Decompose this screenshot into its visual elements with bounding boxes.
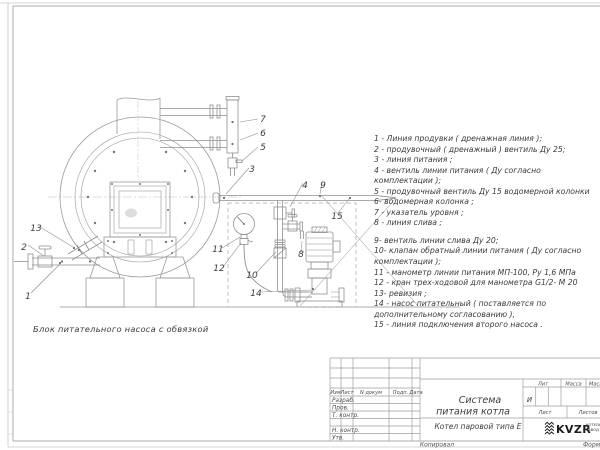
legend-line: 12 - кран трех-ходовой для манометра G1/… — [374, 278, 600, 289]
sheet-label: Лист — [538, 410, 553, 416]
product-name: Котел паровой типа Е — [434, 422, 521, 431]
callout-2: 2 — [21, 243, 27, 253]
legend-line: 1 - Линия продувки ( дренажная линия ); — [374, 134, 600, 145]
logo-subline-2: ЗАВОД Р — [586, 428, 600, 432]
legend-line: 14 - насос питательный ( поставляется по — [374, 299, 600, 310]
legend-line: 7 - указатель уровня ; — [374, 208, 600, 219]
role-prov: Пров. — [332, 406, 349, 412]
legend-line: комплектации ); — [374, 257, 600, 268]
burner-plate — [104, 237, 176, 257]
drawing-caption: Блок питательного насоса с обвязкой — [33, 324, 209, 334]
callout-15: 15 — [331, 212, 343, 222]
col-list: Лист — [340, 390, 355, 396]
chimney — [117, 98, 160, 180]
scale-label: Масш — [589, 382, 600, 388]
callout-14: 14 — [250, 289, 262, 299]
col-izm: Изм — [330, 390, 341, 396]
legend-line: 15 - линия подключения второго насоса . — [374, 320, 600, 331]
logo-subline-1: КОТЕЛЬН — [586, 423, 600, 427]
doc-title-line1: Система — [459, 395, 502, 406]
legend: 1 - Линия продувки ( дренажная линия ); … — [374, 134, 600, 331]
callout-10: 10 — [246, 271, 258, 281]
callout-5: 5 — [260, 143, 266, 153]
callout-4: 4 — [302, 181, 308, 191]
callout-7: 7 — [260, 115, 266, 125]
lit-value: И — [527, 396, 533, 404]
callout-9: 9 — [320, 181, 326, 191]
callout-leaders — [28, 119, 349, 293]
legend-line: 5 - продувочный вентиль Ду 15 водомерной… — [374, 187, 600, 198]
role-tkontr: Т. контр. — [332, 413, 359, 419]
legend-line: 6- водомерная колонка ; — [374, 197, 600, 208]
title-block-roles: Разраб. Пров. Т. контр. Н. контр. Утв. — [332, 398, 360, 442]
role-razrab: Разраб. — [332, 398, 355, 404]
callout-3: 3 — [249, 165, 255, 175]
drawing-sheet: 1 2 3 4 5 6 7 8 9 10 11 12 13 14 15 Изм … — [0, 0, 600, 450]
legend-line: комплектации ); — [374, 176, 600, 187]
copied-label: Копировал — [420, 442, 454, 449]
kvzr-logo: KVZR КОТЕЛЬН ЗАВОД Р — [545, 422, 600, 436]
mass-label: Масса — [565, 382, 581, 388]
legend-line: 13- ревизия ; — [374, 289, 600, 300]
title-block: Изм Лист N докум Подп. Дата Разраб. Пров… — [330, 358, 600, 449]
role-nkontr: Н. контр. — [332, 428, 360, 434]
callout-6: 6 — [260, 129, 266, 139]
callout-11: 11 — [212, 245, 223, 255]
callout-8: 8 — [298, 250, 304, 260]
legend-line: 4 - вентиль линии питания ( Ду согласно — [374, 166, 600, 177]
water-gauge-column — [160, 97, 242, 177]
legend-line: 11 - манометр линии питания МП-100, Ру 1… — [374, 268, 600, 279]
legend-line: 2 - продувочный ( дренажный ) вентиль Ду… — [374, 145, 600, 156]
lit-label: Лит — [537, 382, 549, 388]
sheets-label: Листов — [577, 410, 597, 416]
callout-13: 13 — [30, 224, 42, 234]
boiler-supports — [86, 257, 194, 307]
format-label: Формат — [583, 442, 600, 449]
callout-12: 12 — [213, 264, 225, 274]
kvzr-logo-icon — [545, 422, 554, 434]
callout-1: 1 — [25, 292, 31, 302]
feed-pump — [295, 227, 344, 307]
legend-line: 9- вентиль линии слива Ду 20; — [374, 236, 600, 247]
callout-numbers: 1 2 3 4 5 6 7 8 9 10 11 12 13 14 15 — [21, 115, 343, 302]
drain-assembly — [14, 236, 102, 269]
doc-title-line2: питания котла — [436, 407, 510, 418]
col-podp: Подп. — [393, 390, 408, 396]
title-block-header-cols: Изм Лист N докум Подп. Дата — [330, 390, 422, 396]
legend-line: 10- клапан обратный линии питания ( Ду с… — [374, 246, 600, 257]
furnace-door — [110, 182, 170, 237]
col-data: Дата — [408, 390, 422, 396]
role-utv: Утв. — [332, 436, 344, 442]
legend-line: 3 - линия питания ; — [374, 155, 600, 166]
col-ndoc: N докум — [360, 390, 382, 396]
legend-line: 8 - линия слива ; — [374, 218, 600, 229]
legend-line: дополнительному согласованию ), — [374, 310, 600, 321]
